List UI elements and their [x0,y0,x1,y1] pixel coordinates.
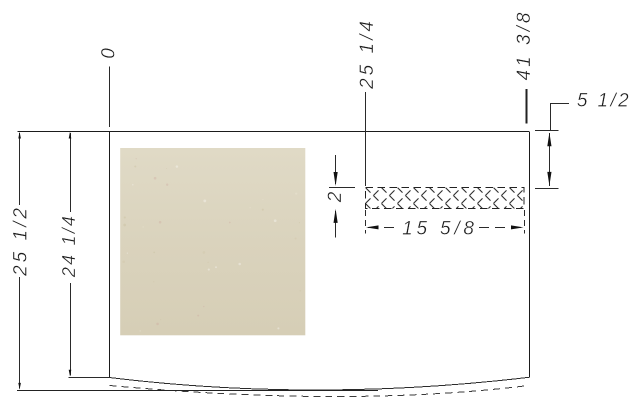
svg-text:25 1/2: 25 1/2 [11,205,32,277]
svg-text:0: 0 [99,45,120,59]
svg-text:2: 2 [325,189,346,204]
svg-text:25 1/4: 25 1/4 [357,18,378,90]
svg-text:15 5/8: 15 5/8 [402,219,478,240]
svg-text:24 1/4: 24 1/4 [59,214,79,278]
svg-text:5 1/2: 5 1/2 [577,91,631,112]
svg-text:41 3/8: 41 3/8 [514,10,535,81]
